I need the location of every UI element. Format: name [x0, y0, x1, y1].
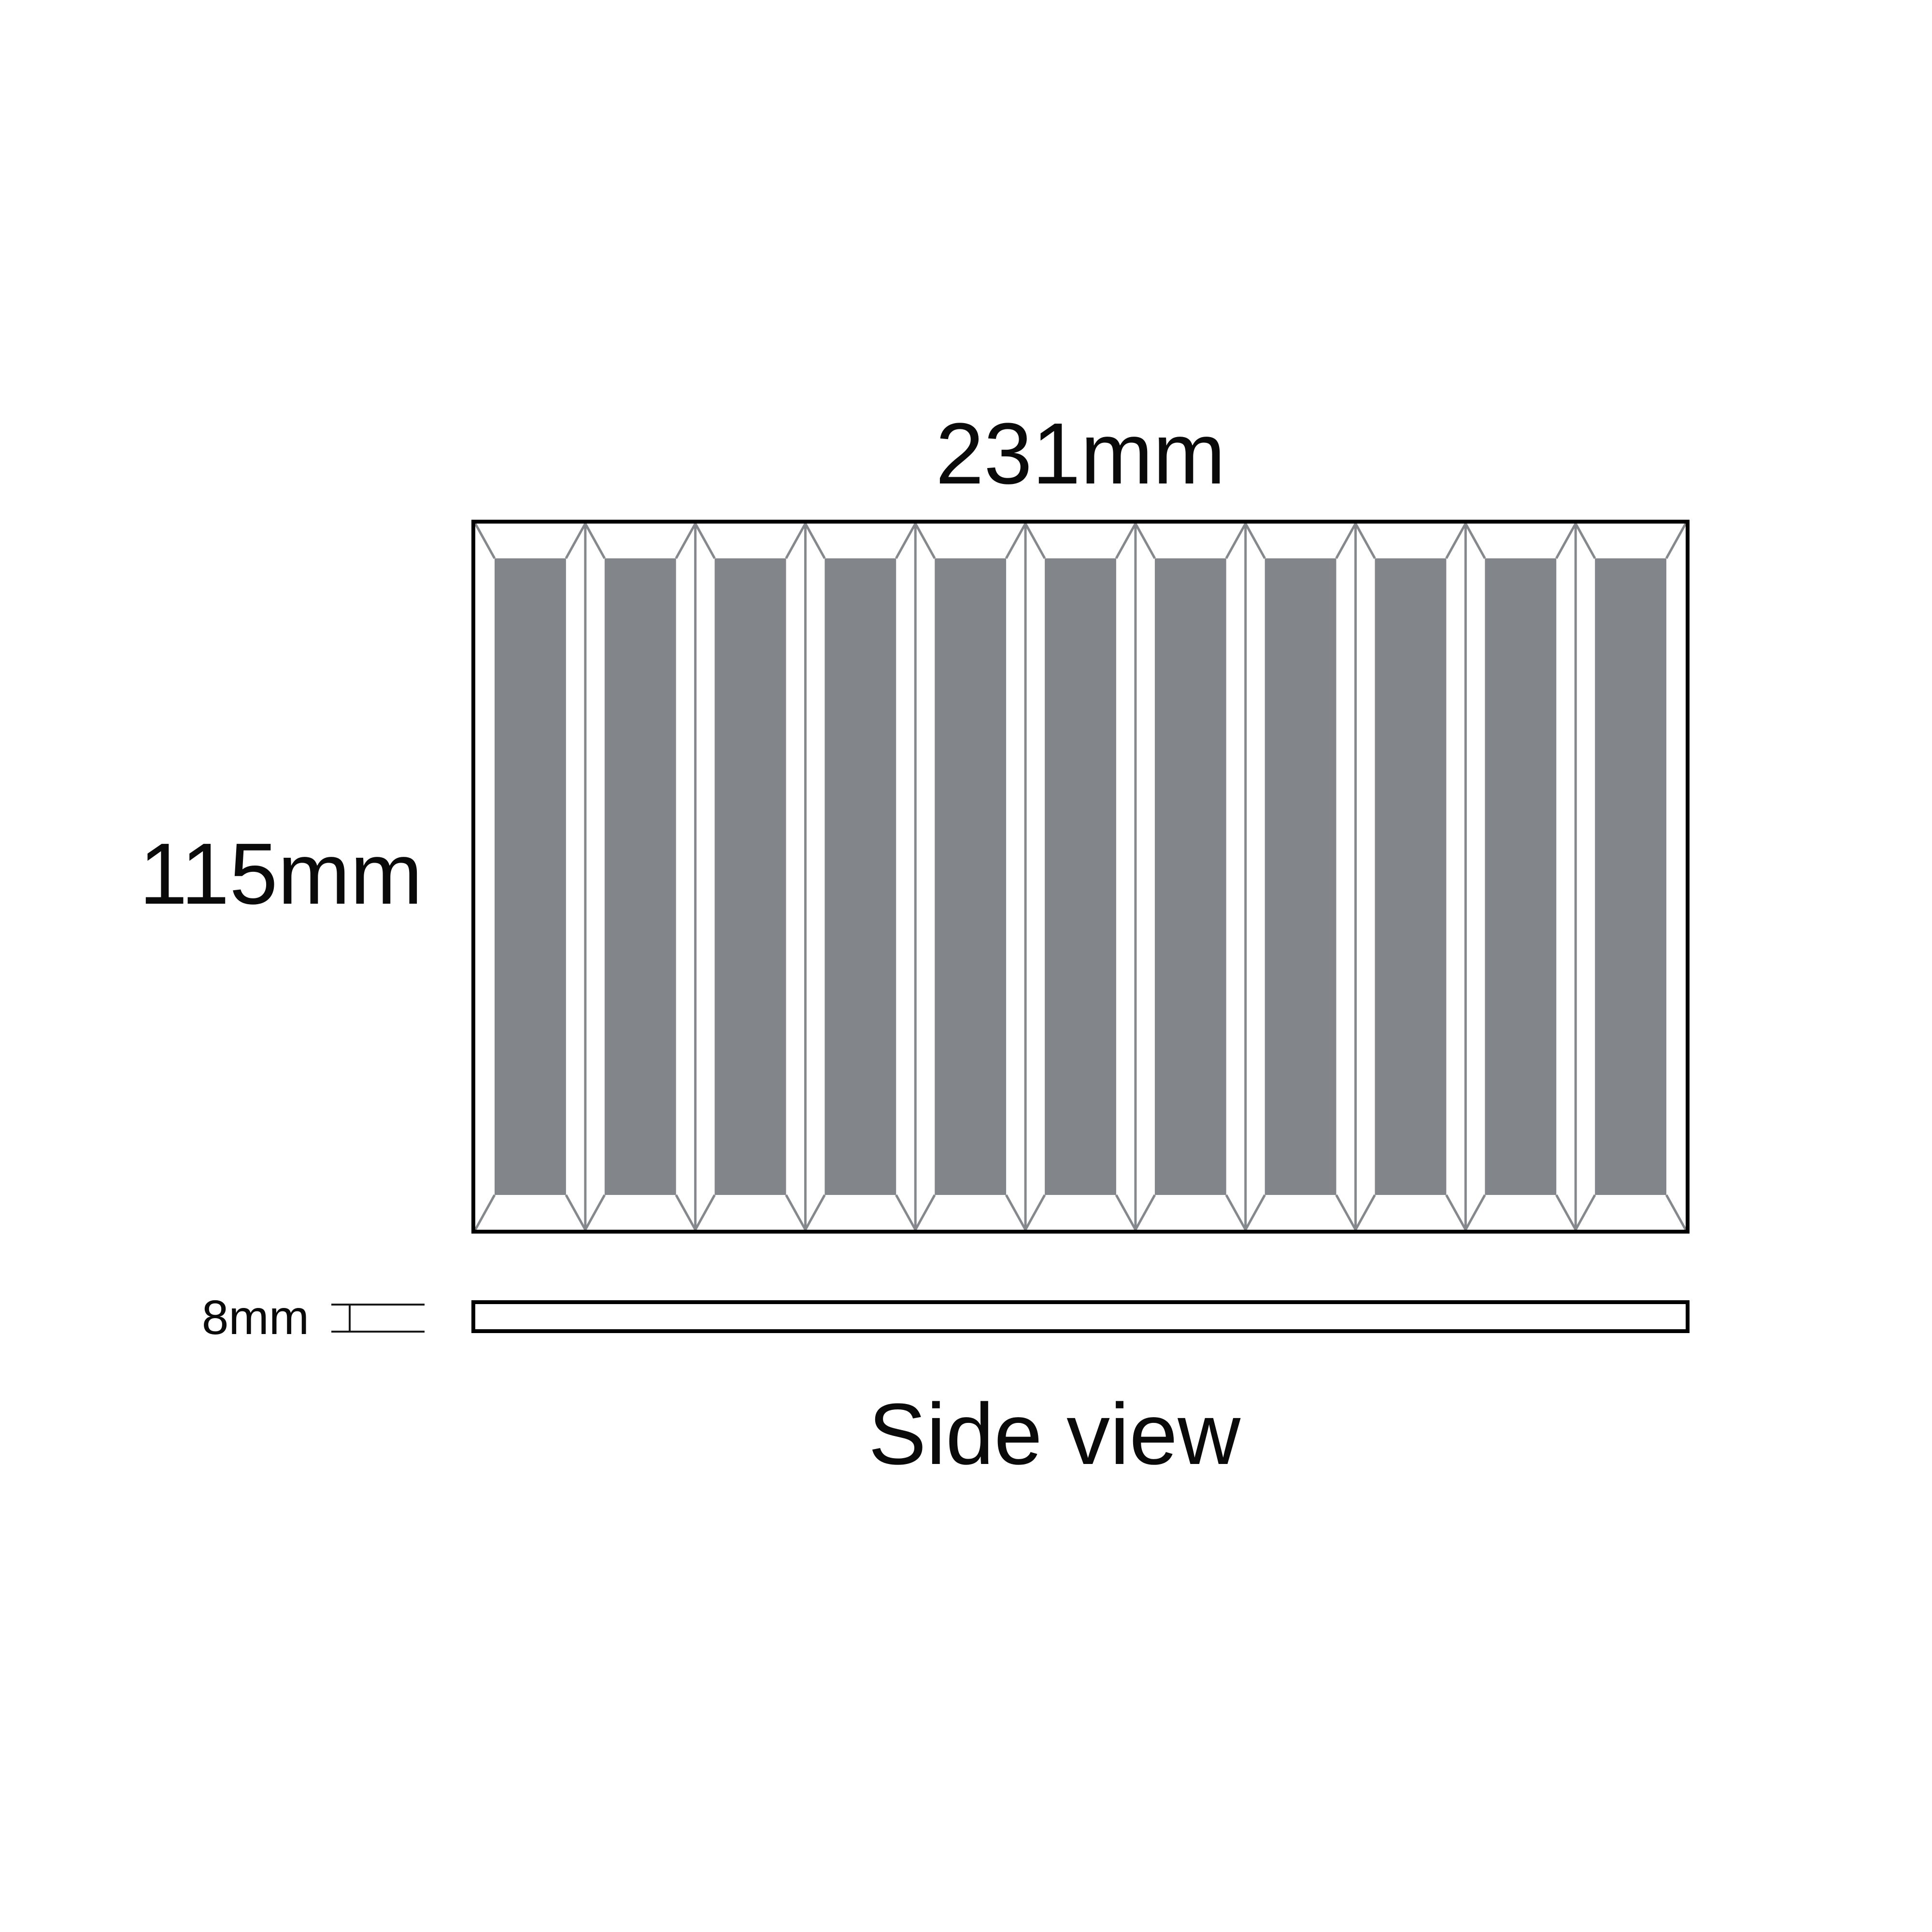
height-dimension-text: 115mm	[139, 831, 423, 918]
dimension-diagram: 231mm 115mm 8mm Side view	[0, 0, 1932, 1932]
flute-pattern	[475, 524, 1686, 1230]
thickness-indicator-tick	[349, 1304, 351, 1333]
side-view-bar	[471, 1300, 1690, 1333]
side-view-caption-text: Side view	[868, 1391, 1240, 1478]
side-view-caption: Side view	[445, 1396, 1663, 1478]
height-dimension-label: 115mm	[159, 826, 423, 918]
width-dimension-text: 231mm	[936, 411, 1225, 497]
thickness-dimension-text: 8mm	[202, 1293, 309, 1342]
thickness-indicator-bottom-line	[331, 1331, 425, 1333]
front-view-panel	[471, 520, 1690, 1234]
thickness-dimension-label: 8mm	[135, 1288, 309, 1342]
width-dimension-label: 231mm	[471, 401, 1690, 497]
thickness-indicator-top-line	[331, 1304, 425, 1306]
